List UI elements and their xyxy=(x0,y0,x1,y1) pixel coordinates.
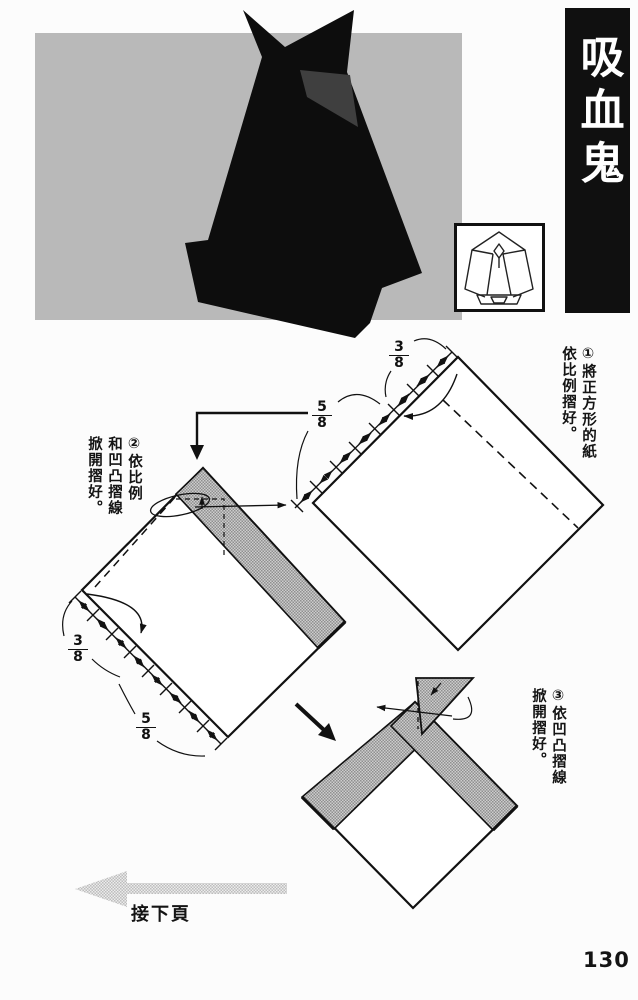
next-page-label: 接下頁 xyxy=(131,900,191,926)
folded-tip-flap xyxy=(416,678,473,734)
step2-line2: 和凹凸摺線 xyxy=(104,436,124,561)
step1-instructions: ①將正方形的紙 依比例摺好。 xyxy=(558,346,598,546)
step-connector-elbow-arrow-icon xyxy=(190,413,308,460)
step2-line1: ②依比例 xyxy=(124,436,144,561)
step2-instructions: ②依比例 和凹凸摺線 掀開摺好。 xyxy=(84,436,144,561)
step1-line1: ①將正方形的紙 xyxy=(578,346,598,546)
fraction-step2-top: 3 8 xyxy=(68,634,88,665)
step1-line2: 依比例摺好。 xyxy=(558,346,578,546)
fraction-step1-top: 3 8 xyxy=(389,340,409,371)
turn-curl xyxy=(453,697,472,719)
step2-line3: 掀開摺好。 xyxy=(84,436,104,561)
step3-diagram xyxy=(302,678,517,908)
step3-instructions: ③依凹凸摺線 掀開摺好。 xyxy=(528,688,568,833)
book-page: 吸血鬼 xyxy=(0,0,638,1000)
fraction-step2-bottom: 5 8 xyxy=(136,712,156,743)
step3-line2: 掀開摺好。 xyxy=(528,688,548,833)
step-connector-arrow-icon xyxy=(296,704,336,741)
fraction-step1-bottom: 5 8 xyxy=(312,400,332,431)
step3-line1: ③依凹凸摺線 xyxy=(548,688,568,833)
page-number: 130 xyxy=(583,948,630,972)
step1-diagram xyxy=(291,339,603,650)
